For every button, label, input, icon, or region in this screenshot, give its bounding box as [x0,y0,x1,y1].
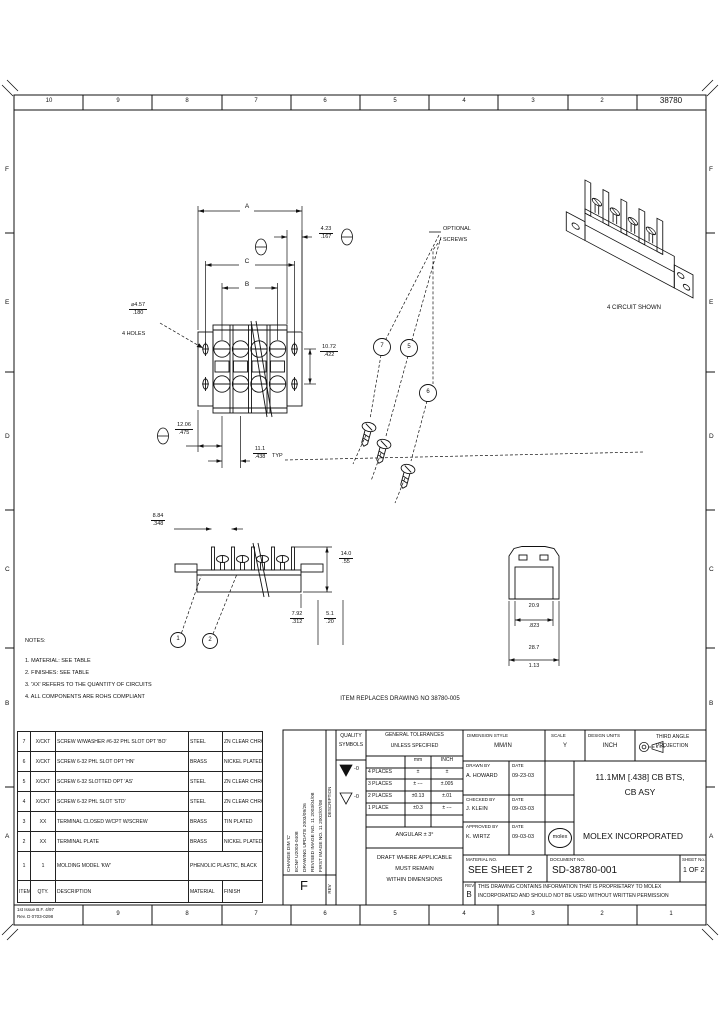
revision-description-label: DESCRIPTION [327,734,332,870]
parts-material: PHENOLIC PLASTIC, BLACK [189,852,263,881]
notes-heading: NOTES: [25,638,45,644]
tol-row-mm: ±0.3 [405,806,431,812]
parts-qty: X/CKT [31,792,56,812]
isometric-view [566,170,693,298]
parts-qty: XX [31,812,56,832]
dimension-style-label: DIMENSION STYLE [467,733,508,738]
zone-number-top: 6 [305,98,345,105]
approved-date-value: 09-03-03 [512,834,534,840]
parts-desc: SCREW W/WASHER #6-32 PHL SLOT OPT 'BO' [56,732,189,752]
approved-by-label: APPROVED BY [466,824,498,829]
tol-row-label: 3 PLACES [368,782,392,788]
sheet-no-value: 1 OF 2 [683,867,704,875]
parts-material: STEEL [189,792,223,812]
rev-label: REV [465,883,474,888]
title-block-grid [463,730,706,905]
company-name: MOLEX INCORPORATED [583,832,683,842]
end-view-dimensions [509,601,559,666]
zone-letter-right: F [709,166,713,173]
tolerances-draft1: DRAFT WHERE APPLICABLE [366,855,463,861]
optional-screw-sketches [357,421,416,490]
tolerances-draft2: MUST REMAIN [366,866,463,872]
parts-desc: TERMINAL PLATE [56,832,189,852]
note-line: 1. MATERIAL: SEE TABLE [25,658,91,664]
balloon-item-5: 5 [401,344,417,351]
drawing-number-top-right: 38780 [646,96,696,105]
dim-28-7-mm: 28.7 [520,645,548,651]
parts-row: 1 1 MOLDING MODEL 'KW' PHENOLIC PLASTIC,… [18,852,263,881]
zone-number-top: 4 [444,98,484,105]
projection-label-line1: THIRD ANGLE [656,735,689,741]
design-units-value: INCH [588,743,632,750]
parts-row: 3 XX TERMINAL CLOSED W/CPT W/SCREW BRASS… [18,812,263,832]
document-no-value: SD-38780-001 [552,865,617,877]
parts-item: 3 [18,812,31,832]
zone-letter-left: D [5,433,10,440]
quality-symbol-suffix: -0 [354,794,359,800]
parts-material: BRASS [189,752,223,772]
drawing-title-line2: CB ASY [576,788,704,798]
tol-row-mm: ±0.13 [405,794,431,800]
parts-desc: TERMINAL CLOSED W/CPT W/SCREW [56,812,189,832]
zone-letter-left: A [5,833,9,840]
dim-8-84-label: 8.84.348 [143,513,173,528]
parts-finish: ZN CLEAR CHROMATE [223,772,263,792]
dim-c-label: C [237,258,257,265]
checked-by-label: CHECKED BY [466,797,495,802]
tolerances-draft3: WITHIN DIMENSIONS [366,877,463,883]
zone-letter-left: B [5,700,9,707]
note-line: 3. 'XX' REFERS TO THE QUANTITY OF CIRCUI… [25,682,152,688]
zone-number-bottom: 2 [582,911,622,918]
revision-entry: ECN# U2003-0408 [294,732,302,872]
parts-item: 4 [18,792,31,812]
dim-5-1-label: 5.1.20 [315,611,345,626]
optional-screws-caption-line2: SCREWS [443,237,467,243]
dim-holes-note: 4 HOLES [122,331,145,337]
balloon-item-6: 6 [420,389,436,396]
optional-screw-leaders [353,235,441,503]
dim-holes-label: ⌀4.57.180 [123,302,153,317]
parts-desc: SCREW 6-32 SLOTTED OPT 'AS' [56,772,189,792]
dim-28-7-in: 1.13 [520,663,548,669]
zone-letter-left: C [5,566,10,573]
parts-item: 2 [18,832,31,852]
dim-pitch-label: 11.1.438 [245,446,275,461]
issue-note-line1: 1st Issue B.F. 4/97 [17,907,54,912]
side-view-leaders [182,574,238,634]
zone-number-top: 5 [375,98,415,105]
tol-row-mm: ± [405,770,431,776]
tol-row-inch: ±.005 [431,782,463,788]
revision-letter: F [290,879,318,894]
revision-entry: DRAWING UPDATE 2003/09/26 [302,732,310,872]
revision-entry: FIRST IMAGE NO. 11 2002/07/08 [318,732,326,872]
dim-20-9-in: .823 [520,623,548,629]
parts-qty: X/CKT [31,752,56,772]
balloon-item-2: 2 [202,637,218,644]
dim-20-9-mm: 20.9 [520,603,548,609]
dim-a-label: A [237,203,257,210]
revision-entry: REVISED IMAGE NO. 11 2003/04/08 [310,732,318,872]
dim-14-0-label: 14.0.55 [331,551,361,566]
tol-row-mm: ± --- [405,782,431,788]
zone-letter-left: F [5,166,9,173]
tolerances-title1: GENERAL TOLERANCES [366,733,463,739]
zone-number-top: 2 [582,98,622,105]
end-view [509,547,559,600]
parts-finish: ZN CLEAR CHROMATE [223,792,263,812]
tol-row-label: 4 PLACES [368,770,392,776]
parts-desc: SCREW 6-32 PHL SLOT 'STD' [56,792,189,812]
zone-number-bottom: 3 [513,911,553,918]
dimension-style-value: MM/IN [467,743,539,750]
document-no-label: DOCUMENT NO. [550,857,585,862]
drawing-title-line1: 11.1MM [.438] CB BTS, [576,773,704,783]
parts-finish: ZN CLEAR CHROMATE [223,732,263,752]
parts-header-row: ITEM QTY. DESCRIPTION MATERIAL FINISH [18,881,263,903]
proprietary-note-line1: THIS DRAWING CONTAINS INFORMATION THAT I… [478,885,661,891]
balloon-item-7: 7 [374,343,390,350]
checked-date-value: 09-03-03 [512,806,534,812]
parts-row: 4 X/CKT SCREW 6-32 PHL SLOT 'STD' STEEL … [18,792,263,812]
zone-number-bottom: 5 [375,911,415,918]
zone-letter-right: A [709,833,713,840]
parts-material: BRASS [189,832,223,852]
zone-letter-right: D [709,433,714,440]
tol-row-label: 1 PLACE [368,806,389,812]
tol-row-inch: ±.01 [431,794,463,800]
parts-material: BRASS [189,812,223,832]
quality-symbol-icons [340,765,352,804]
drawn-by-value: A. HOWARD [466,773,498,779]
dim-7-92-label: 7.92.312 [282,611,312,626]
parts-qty: X/CKT [31,732,56,752]
dim-pitch-typ: TYP [272,453,283,459]
scale-label: SCALE [551,733,566,738]
molex-logo-text: molex [549,834,571,840]
parts-header-item: ITEM [18,881,31,903]
zone-number-top: 10 [29,98,69,105]
drawn-date-value: 09-23-03 [512,773,534,779]
revision-entry: CHANGE DIM 'C' [286,732,294,872]
top-view [198,321,302,417]
proprietary-note-line2: INCORPORATED AND SHOULD NOT BE USED WITH… [478,894,669,900]
issue-note-line2: Rev. D 0703-0298 [17,914,53,919]
parts-qty: X/CKT [31,772,56,792]
zone-number-top: 3 [513,98,553,105]
parts-item: 7 [18,732,31,752]
date-label: DATE [512,797,524,802]
quality-symbols-heading1: QUALITY [336,734,366,740]
parts-row: 7 X/CKT SCREW W/WASHER #6-32 PHL SLOT OP… [18,732,263,752]
dim-b-label: B [237,281,257,288]
tol-row-inch: ± --- [431,806,463,812]
quality-symbols-heading2: SYMBOLS [336,743,366,749]
parts-finish: TIN PLATED [223,812,263,832]
zone-letter-right: E [709,299,713,306]
zone-number-bottom: 1 [651,911,691,918]
zone-number-bottom: 6 [305,911,345,918]
parts-header-finish: FINISH [223,881,263,903]
tolerances-col-inch: INCH [431,758,463,764]
zone-number-top: 9 [98,98,138,105]
replaces-note: ITEM REPLACES DRAWING NO 38780-005 [300,696,500,703]
dim-10-72-label: 10.72.422 [314,344,344,359]
projection-label-line2: PROJECTION [656,744,688,750]
parts-table: 7 X/CKT SCREW W/WASHER #6-32 PHL SLOT OP… [17,731,263,903]
tol-row-inch: ± [431,770,463,776]
zone-letter-right: B [709,700,713,707]
parts-row: 5 X/CKT SCREW 6-32 SLOTTED OPT 'AS' STEE… [18,772,263,792]
parts-material: STEEL [189,772,223,792]
parts-material: STEEL [189,732,223,752]
zone-number-bottom: 9 [98,911,138,918]
parts-finish: NICKEL PLATED [223,752,263,772]
quality-symbol-suffix: -0 [354,766,359,772]
parts-row: 6 X/CKT SCREW 6-32 PHL SLOT OPT 'HN' BRA… [18,752,263,772]
zone-letter-right: C [709,566,714,573]
parts-header-material: MATERIAL [189,881,223,903]
date-label: DATE [512,763,524,768]
note-line: 2. FINISHES: SEE TABLE [25,670,89,676]
tolerances-title2: UNLESS SPECIFIED [366,744,463,750]
zone-number-top: 7 [236,98,276,105]
top-view-dimensions [186,206,316,468]
parts-desc: MOLDING MODEL 'KW' [56,852,189,881]
parts-item: 5 [18,772,31,792]
zone-letter-left: E [5,299,9,306]
sheet-no-label: SHEET No. [682,857,705,862]
design-units-label: DESIGN UNITS [588,733,620,738]
side-view [171,543,324,649]
tolerances-col-mm: mm [405,758,431,764]
optional-screws-caption-line1: OPTIONAL [443,226,471,232]
balloon-item-1: 1 [170,636,186,643]
revision-history-rotated: CHANGE DIM 'C' ECN# U2003-0408 DRAWING U… [286,732,326,872]
optional-screw-balloons [374,232,442,402]
rev-value: B [463,890,475,899]
note-line: 4. ALL COMPONENTS ARE ROHS COMPLIANT [25,694,145,700]
parts-row: 2 XX TERMINAL PLATE BRASS NICKEL PLATED [18,832,263,852]
zone-number-bottom: 4 [444,911,484,918]
zone-number-top: 8 [167,98,207,105]
parts-header-desc: DESCRIPTION [56,881,189,903]
parts-desc: SCREW 6-32 PHL SLOT OPT 'HN' [56,752,189,772]
material-no-value: SEE SHEET 2 [468,865,532,877]
parts-finish: NICKEL PLATED [223,832,263,852]
approved-by-value: K. WIRTZ [466,834,490,840]
tolerances-angular: ANGULAR ± 3° [366,832,463,838]
parts-item: 6 [18,752,31,772]
parts-qty: XX [31,832,56,852]
revision-rev-label: REV [327,875,332,903]
dim-12-06-label: 12.06.475 [169,422,199,437]
side-view-arrowheads [206,527,329,592]
zone-number-bottom: 7 [236,911,276,918]
iso-view-caption: 4 CIRCUIT SHOWN [594,305,674,312]
scale-value: Y [548,743,582,750]
date-label: DATE [512,824,524,829]
tol-row-label: 2 PLACES [368,794,392,800]
parts-item: 1 [18,852,31,881]
parts-header-qty: QTY. [31,881,56,903]
drawing-sheet: 10 9 8 7 6 5 4 3 2 38780 1st Issue B.F. … [0,0,720,1012]
dim-4-23-label: 4.23.167 [311,226,341,241]
material-no-label: MATERIAL NO. [466,857,497,862]
zone-number-bottom: 8 [167,911,207,918]
checked-by-value: J. KLEIN [466,806,488,812]
parts-qty: 1 [31,852,56,881]
drawn-by-label: DRAWN BY [466,763,490,768]
